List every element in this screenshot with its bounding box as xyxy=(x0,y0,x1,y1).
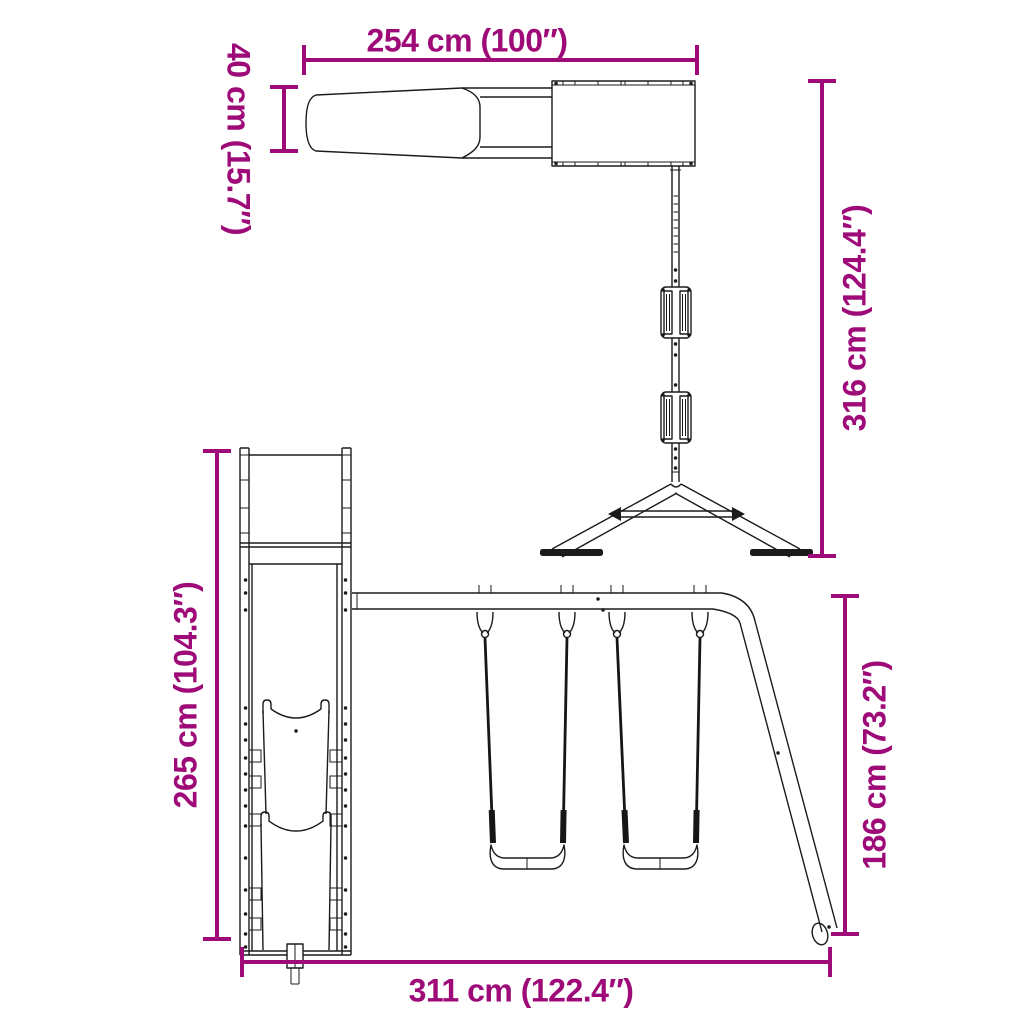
dim-line-slide-width xyxy=(270,87,298,151)
swing-beam-front xyxy=(352,585,837,947)
tower-front xyxy=(240,448,351,955)
swing-seat-top-view-2 xyxy=(661,392,691,443)
dim-label-platform-slide-length: 254 cm (100″) xyxy=(367,23,568,60)
dim-label-tower-height: 265 cm (104.3″) xyxy=(168,582,205,809)
dim-label-overall-depth: 316 cm (124.4″) xyxy=(837,205,874,432)
slide-front xyxy=(261,700,331,984)
a-frame-top-view xyxy=(540,484,813,557)
dim-line-swing-beam-height xyxy=(831,596,859,934)
swing-2 xyxy=(609,612,708,869)
front-view xyxy=(240,448,837,984)
dim-line-overall-depth xyxy=(808,81,836,556)
top-view xyxy=(306,81,813,557)
dim-label-overall-width: 311 cm (122.4″) xyxy=(409,973,634,1010)
diagram-canvas xyxy=(0,0,1024,1024)
dim-label-slide-width: 40 cm (15.7″) xyxy=(220,43,257,235)
dim-label-swing-beam-height: 186 cm (73.2″) xyxy=(857,660,894,869)
swing-seat-top-view-1 xyxy=(661,287,691,338)
dim-line-tower-height xyxy=(203,451,231,939)
slide-top-view xyxy=(306,88,552,158)
swing-1 xyxy=(477,612,575,869)
dimension-diagram: 254 cm (100″) 40 cm (15.7″) 316 cm (124.… xyxy=(0,0,1024,1024)
platform-top-view xyxy=(552,81,695,166)
dimension-lines xyxy=(203,45,859,977)
